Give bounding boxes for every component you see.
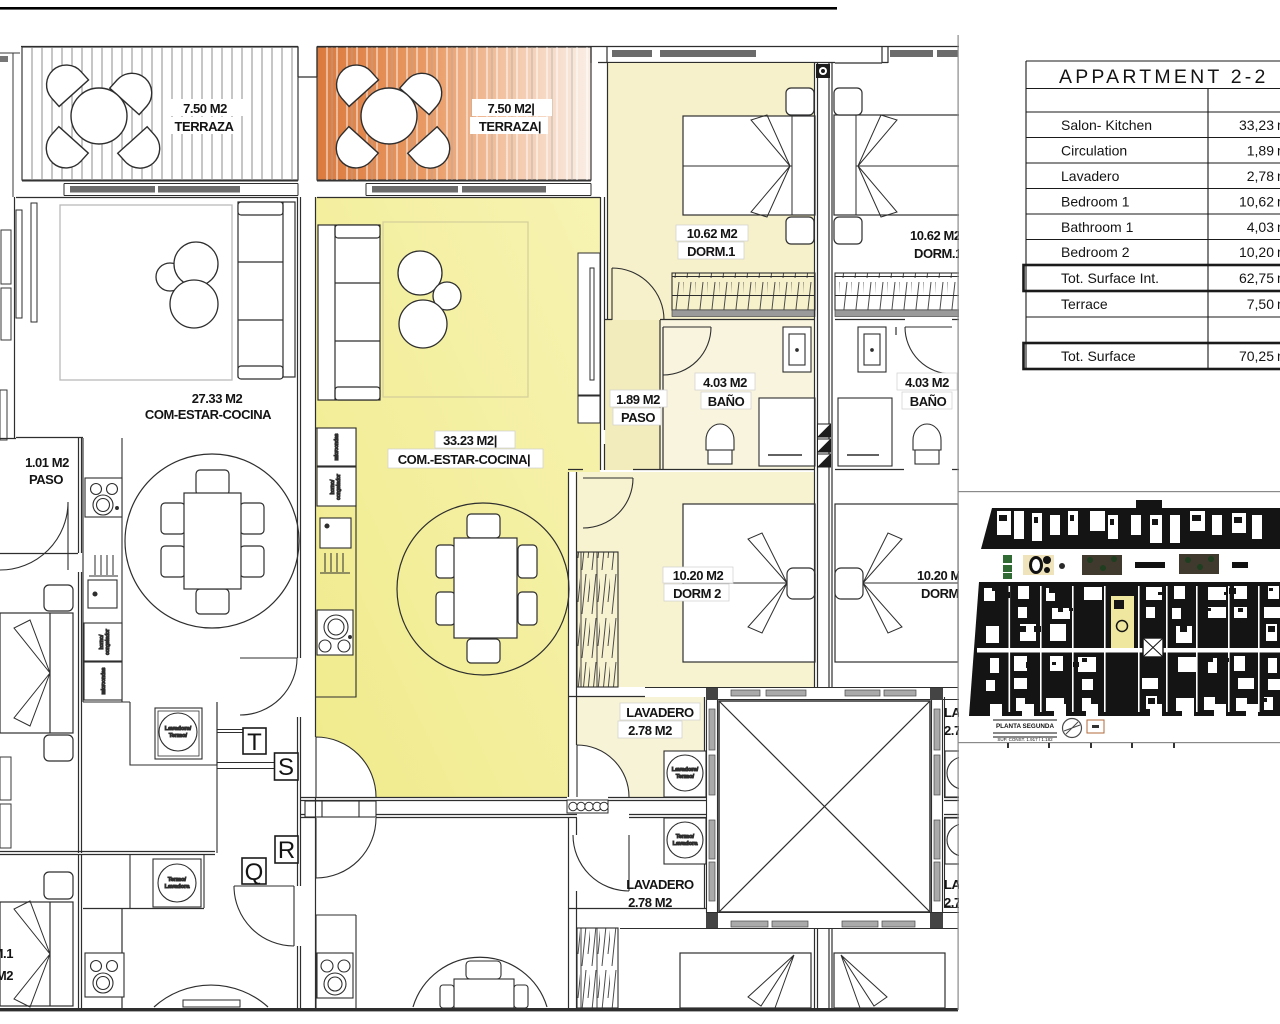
svg-text:Lavadora: Lavadora — [673, 841, 699, 847]
svg-text:Lavadero: Lavadero — [1061, 168, 1120, 184]
svg-text:microondas: microondas — [101, 667, 107, 694]
svg-text:LAVADERO: LAVADERO — [626, 877, 694, 892]
svg-text:Tot. Surface: Tot. Surface — [1061, 348, 1136, 364]
svg-text:1.89 M2: 1.89 M2 — [616, 392, 660, 407]
svg-text:COM-ESTAR-COCINA: COM-ESTAR-COCINA — [145, 407, 272, 422]
svg-text:33.23 M2|: 33.23 M2| — [443, 433, 497, 448]
svg-text:COM.-ESTAR-COCINA|: COM.-ESTAR-COCINA| — [398, 452, 531, 467]
svg-text:DORM.1: DORM.1 — [914, 246, 962, 261]
svg-text:Bedroom 2: Bedroom 2 — [1061, 244, 1130, 260]
svg-text:Salon- Kitchen: Salon- Kitchen — [1061, 117, 1152, 133]
svg-text:PASO: PASO — [621, 410, 655, 425]
svg-text:10.62 M2: 10.62 M2 — [687, 226, 738, 241]
svg-text:10,62: 10,62 — [1239, 194, 1274, 210]
svg-text:M2: M2 — [0, 968, 13, 983]
svg-text:congelador: congelador — [105, 629, 111, 655]
svg-text:SUP. CONST. 1.917 / 1.182: SUP. CONST. 1.917 / 1.182 — [997, 737, 1053, 742]
svg-text:Termo/: Termo/ — [168, 877, 187, 883]
svg-text:PLANTA SEGUNDA: PLANTA SEGUNDA — [996, 723, 1055, 730]
svg-text:Termo/: Termo/ — [676, 774, 695, 780]
svg-text:7.50 M2|: 7.50 M2| — [487, 101, 534, 116]
svg-text:2.78 M2: 2.78 M2 — [628, 723, 672, 738]
svg-text:7,50: 7,50 — [1247, 296, 1274, 312]
svg-text:S: S — [278, 754, 294, 781]
svg-text:Lavadora: Lavadora — [165, 884, 191, 890]
svg-text:Q: Q — [245, 859, 264, 886]
svg-text:congelador: congelador — [336, 474, 342, 500]
svg-text:62,75: 62,75 — [1239, 270, 1274, 286]
svg-text:BAÑO: BAÑO — [708, 394, 745, 409]
svg-text:PASO: PASO — [29, 472, 63, 487]
svg-text:APPARTMENT 2-2: APPARTMENT 2-2 — [1059, 66, 1269, 88]
svg-text:Bedroom 1: Bedroom 1 — [1061, 194, 1130, 210]
svg-text:Termo/: Termo/ — [676, 834, 695, 840]
svg-text:microondas: microondas — [334, 433, 340, 460]
svg-text:T: T — [247, 729, 262, 756]
svg-text:1.01 M2: 1.01 M2 — [25, 455, 69, 470]
svg-text:TERRAZA: TERRAZA — [175, 119, 235, 134]
svg-text:4,03: 4,03 — [1247, 219, 1274, 235]
svg-text:DORM 2: DORM 2 — [673, 586, 721, 601]
svg-text:BAÑO: BAÑO — [910, 394, 947, 409]
svg-text:R: R — [278, 837, 295, 864]
svg-text:10.62 M2: 10.62 M2 — [910, 228, 961, 243]
svg-text:Bathroom 1: Bathroom 1 — [1061, 219, 1134, 235]
svg-text:Termo/: Termo/ — [169, 733, 188, 739]
svg-text:4.03 M2: 4.03 M2 — [905, 375, 949, 390]
svg-text:Tot. Surface Int.: Tot. Surface Int. — [1061, 270, 1159, 286]
svg-text:27.33 M2: 27.33 M2 — [192, 391, 243, 406]
svg-text:4.03 M2: 4.03 M2 — [703, 375, 747, 390]
svg-text:33,23: 33,23 — [1239, 117, 1274, 133]
svg-text:7.50 M2: 7.50 M2 — [183, 101, 227, 116]
svg-text:LAVADERO: LAVADERO — [626, 705, 694, 720]
svg-text:2,78: 2,78 — [1247, 168, 1274, 184]
svg-text:1,89: 1,89 — [1247, 143, 1274, 159]
svg-text:Terrace: Terrace — [1061, 296, 1108, 312]
svg-text:DORM.1: DORM.1 — [687, 244, 735, 259]
svg-text:Lavadora/: Lavadora/ — [672, 767, 699, 773]
svg-text:Lavadora/: Lavadora/ — [165, 726, 192, 732]
svg-text:TERRAZA|: TERRAZA| — [479, 119, 541, 134]
svg-text:Circulation: Circulation — [1061, 143, 1127, 159]
svg-text:10,20: 10,20 — [1239, 244, 1274, 260]
svg-text:70,25: 70,25 — [1239, 348, 1274, 364]
svg-text:10.20 M2: 10.20 M2 — [673, 568, 724, 583]
svg-text:M.1: M.1 — [0, 946, 13, 961]
svg-text:2.78 M2: 2.78 M2 — [628, 895, 672, 910]
